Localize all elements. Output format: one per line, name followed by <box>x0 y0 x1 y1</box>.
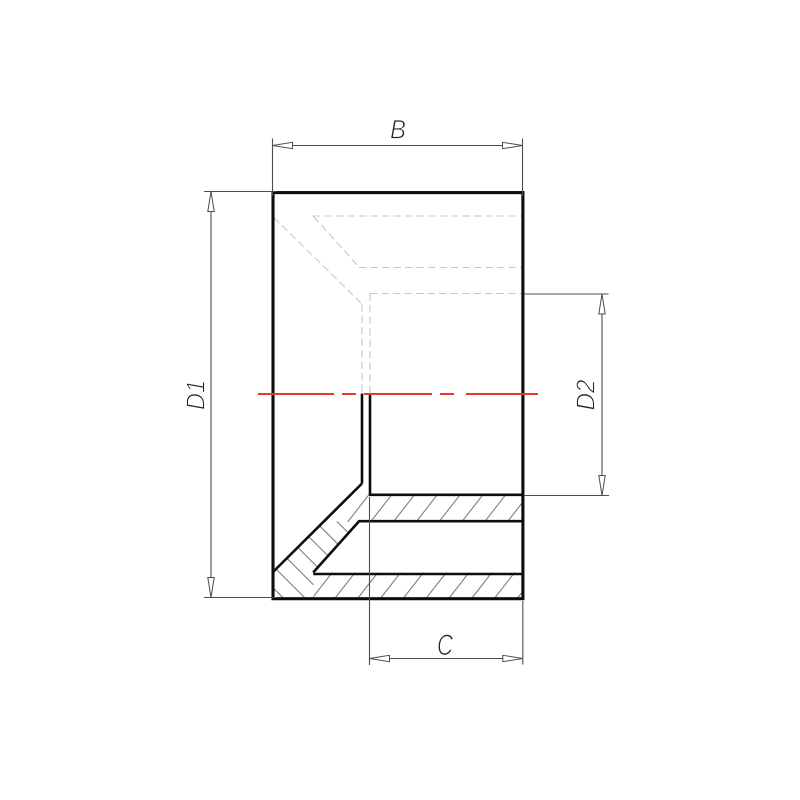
svg-text:D2: D2 <box>571 379 601 410</box>
svg-text:C: C <box>437 629 453 662</box>
svg-text:B: B <box>390 115 406 145</box>
svg-text:D1: D1 <box>181 380 211 410</box>
